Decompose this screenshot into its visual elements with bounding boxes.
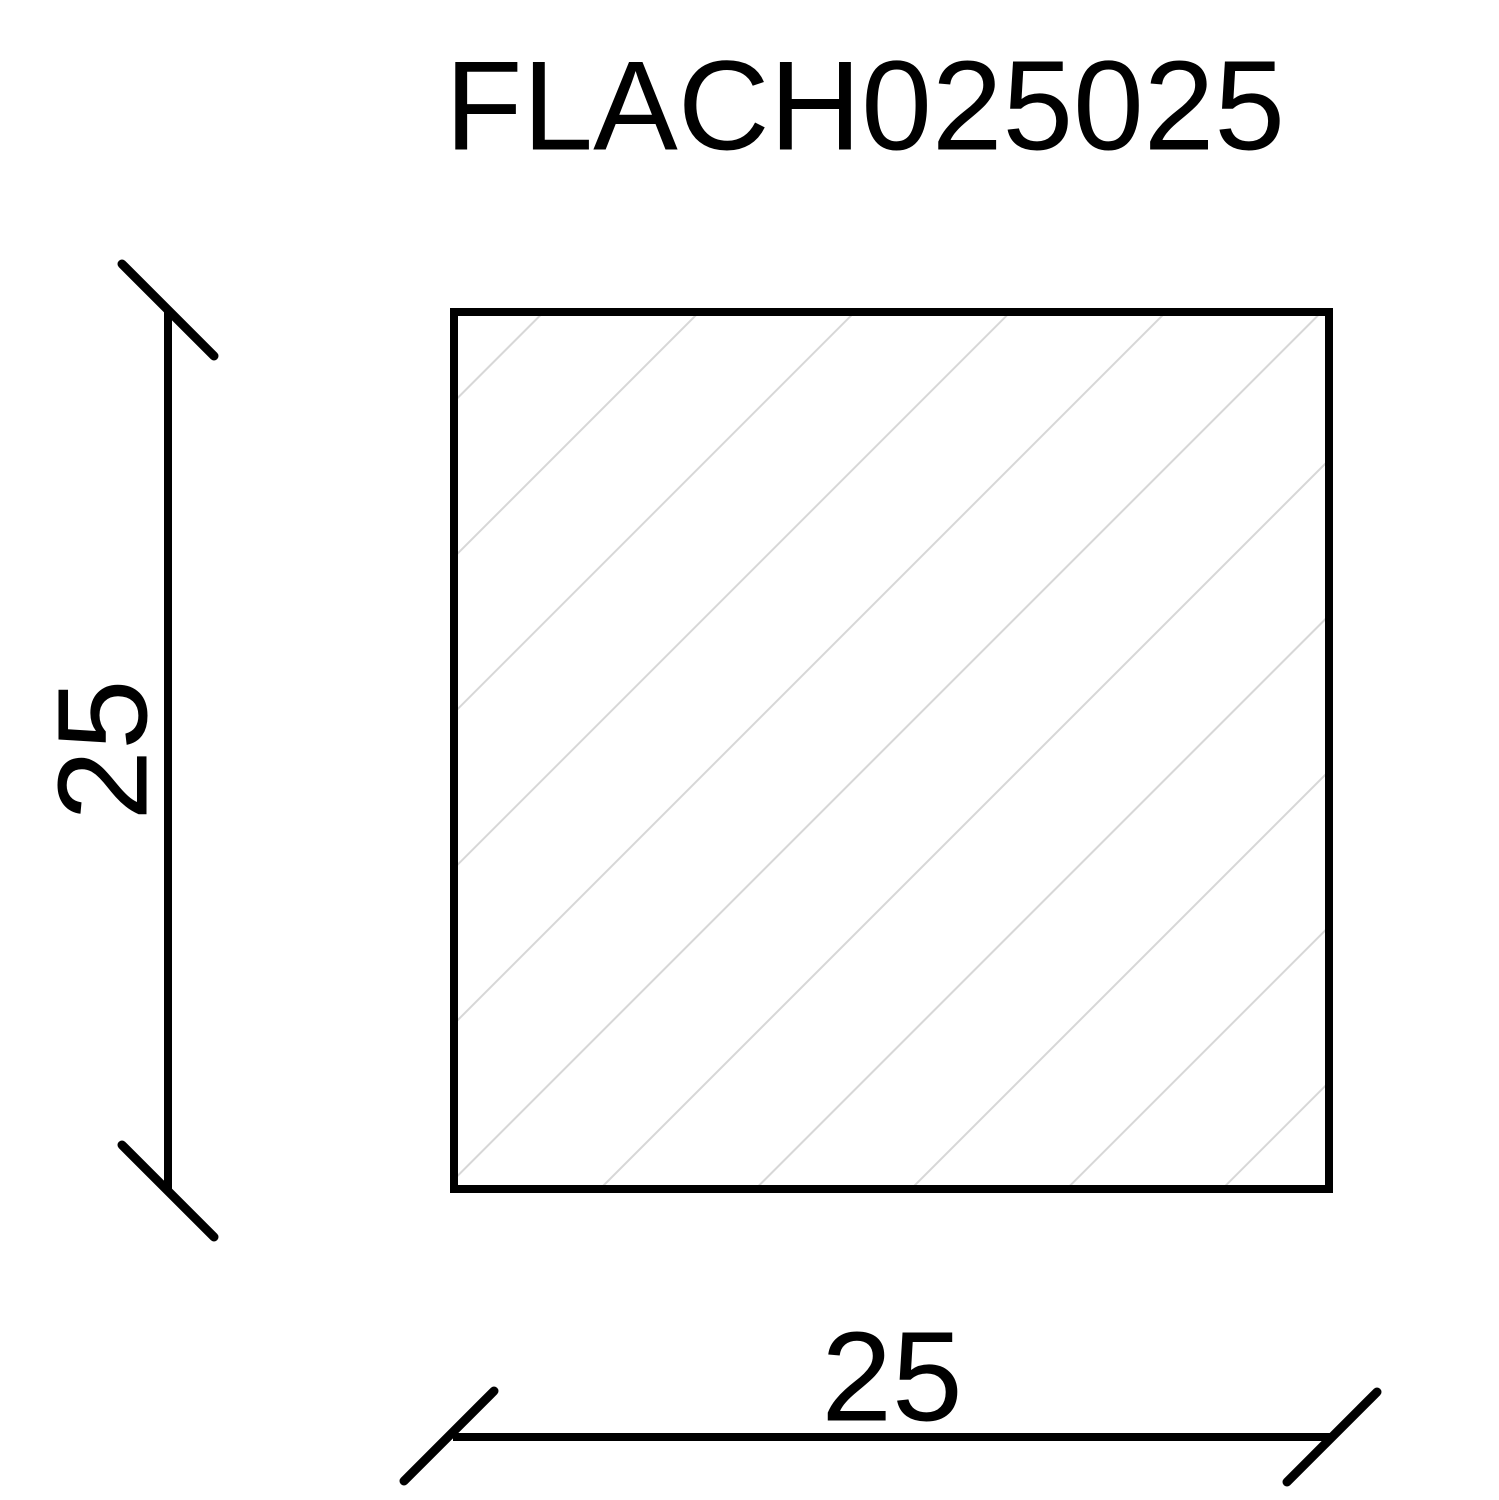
drawing-sheet: FLACH025025 25 25 bbox=[0, 0, 1499, 1500]
width-dimension-value: 25 bbox=[821, 1314, 962, 1441]
drawing-title: FLACH025025 bbox=[445, 43, 1285, 170]
height-dimension-value: 25 bbox=[40, 679, 167, 820]
cross-section-drawing bbox=[0, 0, 1499, 1500]
cross-section-outline bbox=[454, 312, 1329, 1189]
